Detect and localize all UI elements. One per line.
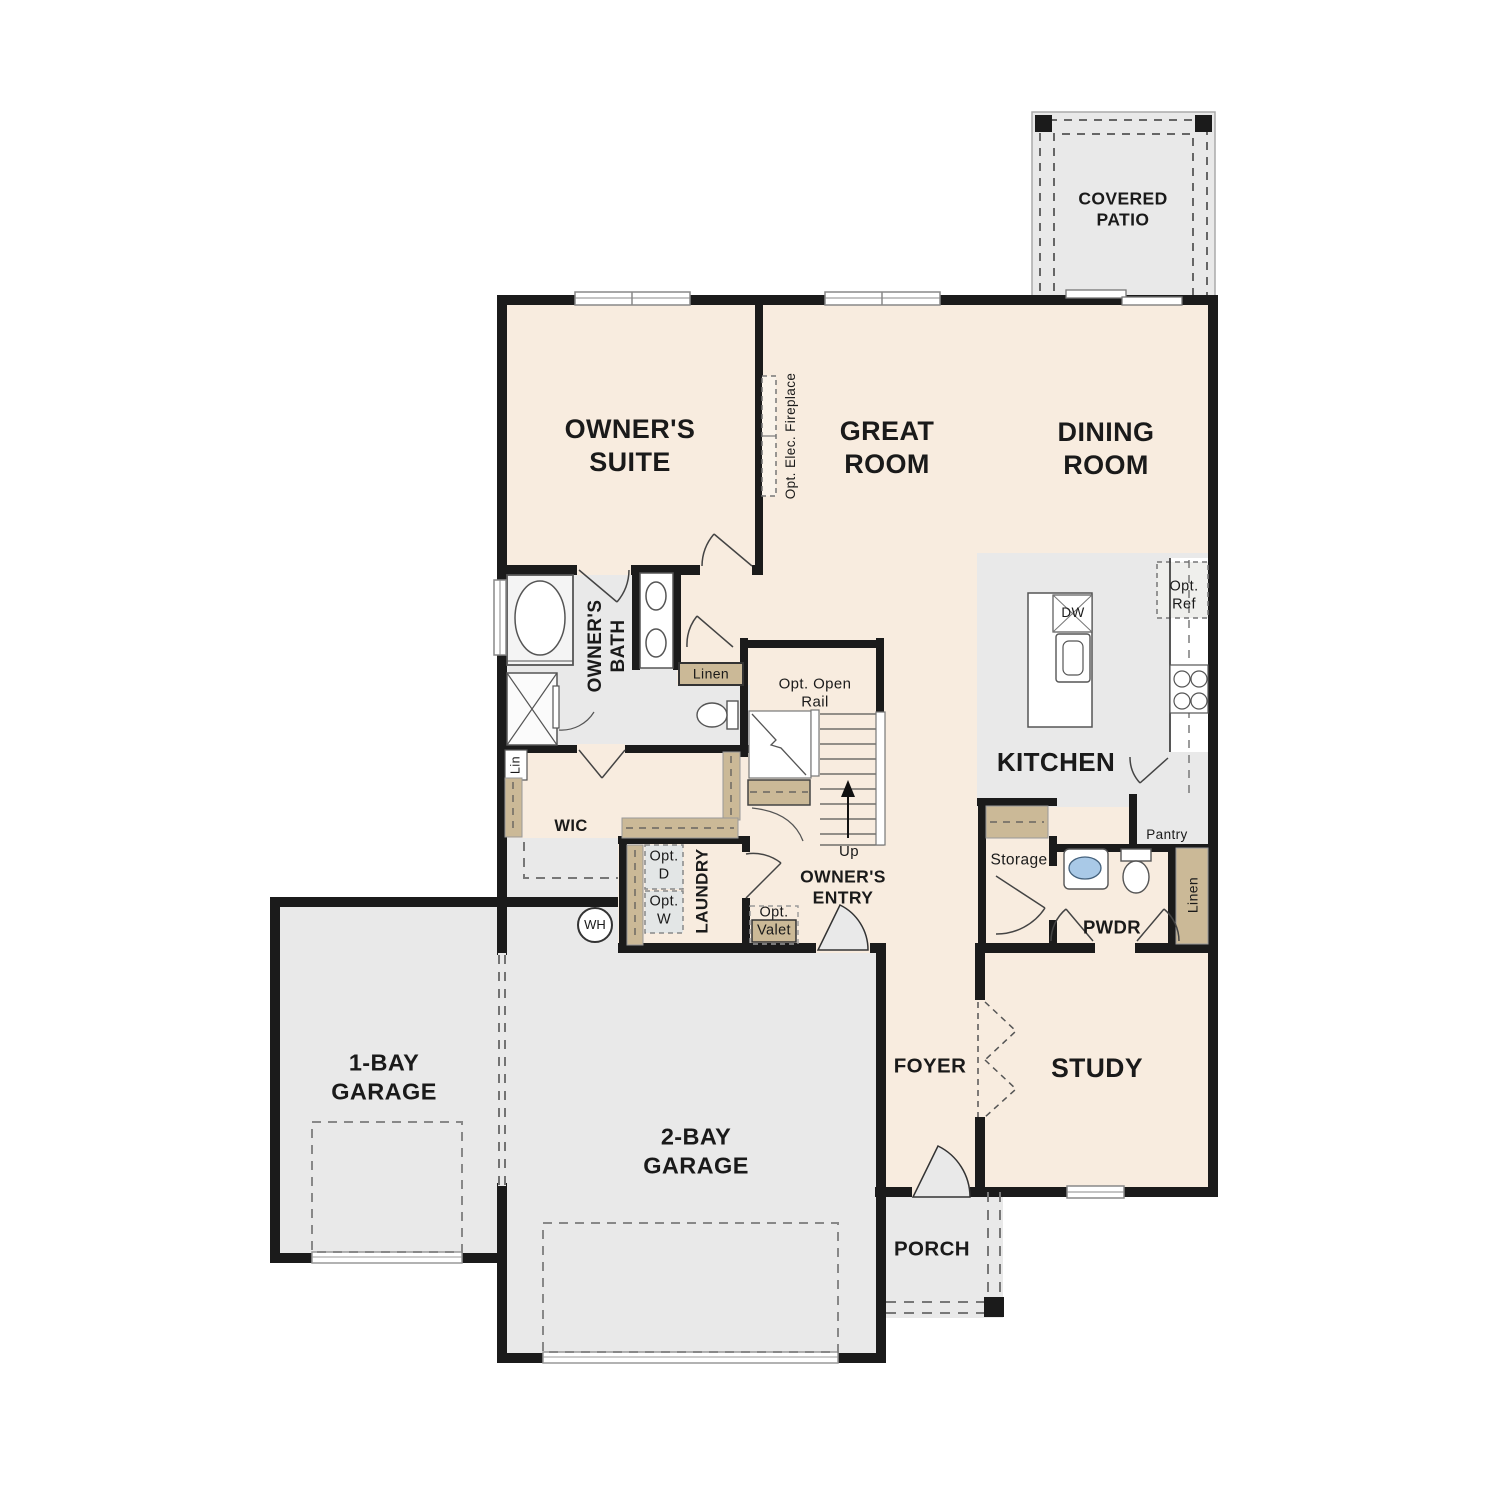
room-label-owners-bath: OWNER'S BATH <box>584 586 630 706</box>
label-linen-bath: Linen <box>693 665 729 682</box>
floor-plan: COVERED PATIO OWNER'S SUITE GREAT ROOM D… <box>0 0 1500 1500</box>
room-label-owners-entry: OWNER'S ENTRY <box>786 867 901 910</box>
room-label-foyer: FOYER <box>870 1054 990 1079</box>
patio-post-icon <box>1035 115 1052 132</box>
powder-fixtures <box>1064 849 1151 893</box>
sliding-door <box>1066 290 1126 298</box>
bathtub-icon <box>515 581 565 655</box>
label-linen-pwdr: Linen <box>1184 877 1201 913</box>
label-opt-washer: Opt. W <box>645 893 683 928</box>
room-label-pwdr: PWDR <box>1067 917 1157 940</box>
label-pantry: Pantry <box>1132 827 1202 843</box>
sink-icon <box>646 629 666 657</box>
stair-rail <box>811 710 819 776</box>
pwdr-sink-icon <box>1069 857 1101 879</box>
label-opt-ref: Opt. Ref <box>1161 578 1207 613</box>
room-label-owners-suite: OWNER'S SUITE <box>545 413 715 479</box>
patio-post-icon <box>1195 115 1212 132</box>
toilet-icon <box>697 703 727 727</box>
label-up: Up <box>839 843 859 861</box>
floor-plan-drawing <box>0 0 1500 1500</box>
toilet-tank <box>1121 849 1151 861</box>
room-label-dining-room: DINING ROOM <box>1031 416 1181 482</box>
toilet-icon <box>1123 861 1149 893</box>
open-rail <box>876 712 885 845</box>
room-label-wic: WIC <box>531 816 611 836</box>
toilet-tank <box>727 701 738 729</box>
sliding-door <box>1122 297 1182 305</box>
room-label-great-room: GREAT ROOM <box>812 415 962 481</box>
room-label-kitchen: KITCHEN <box>946 747 1166 779</box>
room-label-porch: PORCH <box>872 1237 992 1262</box>
room-label-study: STUDY <box>1022 1052 1172 1084</box>
label-water-heater: WH <box>584 917 606 933</box>
shower-door <box>553 686 559 728</box>
label-storage: Storage <box>974 852 1064 871</box>
room-label-1bay-garage: 1-BAY GARAGE <box>320 1048 448 1105</box>
room-label-2bay-garage: 2-BAY GARAGE <box>625 1122 767 1179</box>
label-lin: Lin <box>508 756 523 774</box>
label-opt-valet: Opt. Valet <box>752 904 796 939</box>
label-opt-elec-fireplace: Opt. Elec. Fireplace <box>783 373 799 500</box>
room-label-laundry: LAUNDRY <box>693 848 714 933</box>
label-dishwasher: DW <box>1061 605 1084 621</box>
label-opt-open-rail: Opt. Open Rail <box>768 676 863 713</box>
porch-post-icon <box>984 1297 1004 1317</box>
sink-icon <box>646 582 666 610</box>
room-label-covered-patio: COVERED PATIO <box>1063 189 1183 232</box>
label-opt-dryer: Opt. D <box>645 848 683 883</box>
